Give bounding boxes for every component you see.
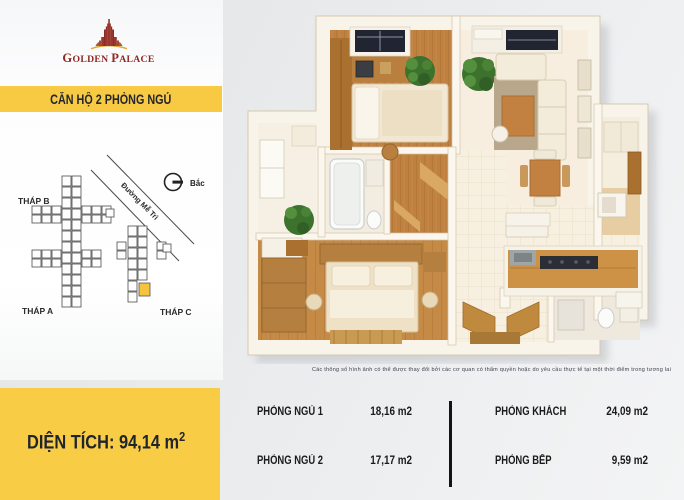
svg-text:THÁP A: THÁP A [22, 306, 53, 316]
svg-text:Bắc: Bắc [190, 179, 205, 188]
svg-text:THÁP C: THÁP C [160, 307, 192, 317]
svg-text:THÁP B: THÁP B [18, 196, 50, 206]
svg-text:Đường Mễ Trì: Đường Mễ Trì [119, 181, 160, 222]
